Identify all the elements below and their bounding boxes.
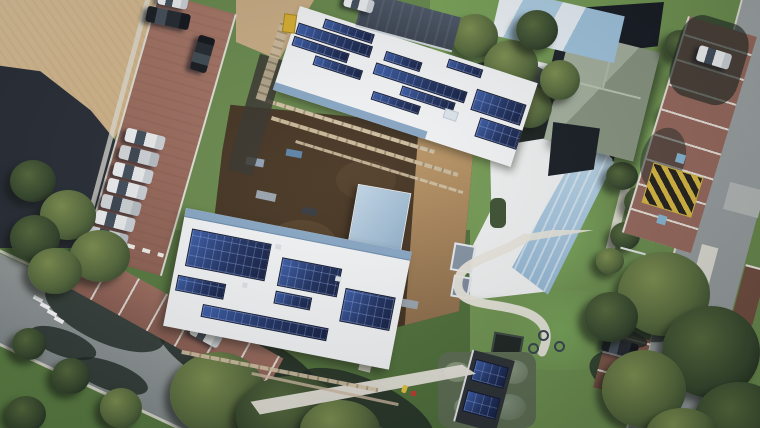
- tree: [6, 396, 46, 428]
- playground-ring: [554, 341, 565, 352]
- tree: [28, 248, 82, 294]
- aerial-photo: [0, 0, 760, 428]
- solar-array: [339, 288, 396, 331]
- material-stack: [255, 190, 276, 202]
- tree: [100, 388, 142, 428]
- playground-ring: [538, 330, 549, 341]
- hedge-notch: [490, 198, 506, 228]
- solar-array: [273, 291, 312, 311]
- roof-unit: [275, 244, 282, 250]
- carport-panel-array: [470, 359, 509, 389]
- tree: [516, 10, 558, 50]
- deep-shadow-south: [548, 122, 600, 176]
- tree: [540, 60, 580, 100]
- yellow-skip-bin: [282, 13, 298, 34]
- red-marker: [411, 391, 416, 396]
- playground-ring: [528, 343, 539, 354]
- tree: [12, 328, 46, 360]
- solar-array: [277, 257, 342, 297]
- material-stack: [286, 149, 303, 159]
- roof-hatch: [443, 108, 459, 122]
- tree: [52, 358, 90, 394]
- solar-array: [185, 229, 272, 282]
- roof-unit: [242, 282, 248, 288]
- material-stack: [302, 207, 318, 216]
- material-stack: [401, 299, 418, 310]
- roof-unit: [335, 276, 342, 282]
- carport-panel-array: [462, 390, 501, 420]
- hedge: [606, 162, 638, 190]
- solar-array: [175, 275, 226, 300]
